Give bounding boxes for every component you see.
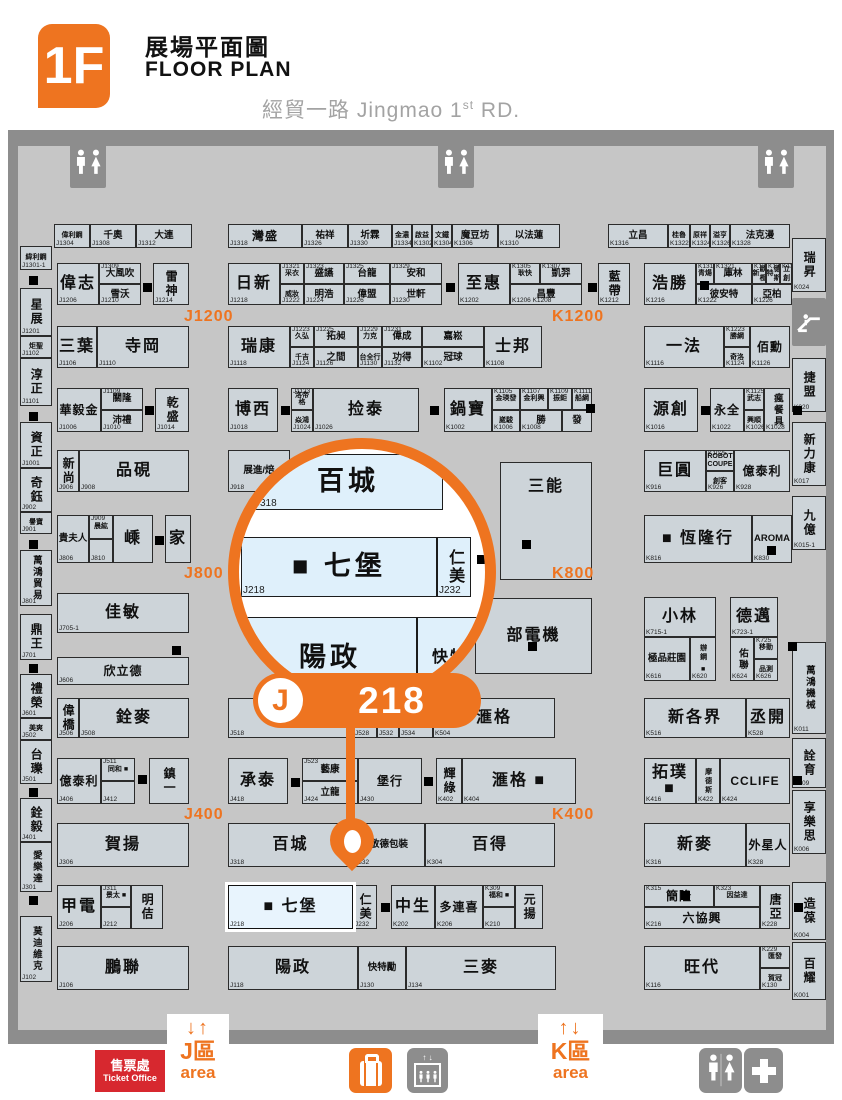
booth-code: J106 xyxy=(59,983,73,990)
booth-K006: 享樂思K006 xyxy=(792,790,826,854)
booth-name: 溢亨 xyxy=(713,232,727,239)
booth-J1018: 博西J1018 xyxy=(228,388,278,432)
booth-name: 力克 xyxy=(363,333,377,340)
booth-K626: 品測K626 xyxy=(754,659,778,681)
k-area-zone-label: K區 xyxy=(551,1038,591,1064)
pillar-marker xyxy=(29,896,38,905)
booth-code: K1111 xyxy=(574,389,591,396)
booth-code: K1222 xyxy=(698,298,717,305)
booth-name: 佰勳 xyxy=(757,341,783,353)
booth-J1126: 之間J1126 xyxy=(314,347,358,368)
booth-J606: 欣立德J606 xyxy=(57,657,189,685)
booth-code: J532 xyxy=(379,731,393,738)
booth-name: 新各界 xyxy=(668,710,722,726)
booth-code: J1301-1 xyxy=(22,263,46,270)
booth-name: 多連喜 xyxy=(439,901,478,913)
booth-code: K422 xyxy=(698,797,713,804)
booth-name: 資正 xyxy=(30,431,42,459)
booth-name: 船綱 xyxy=(575,395,589,402)
booth-K528: 丞開K528 xyxy=(746,698,790,738)
magnifier-circle: 百城J318■ 七堡J218仁美J232陽政J118快特勵 xyxy=(228,438,496,706)
booth-K1109: 振鉅K1109 xyxy=(548,388,572,410)
booth-code: K206 xyxy=(437,922,452,929)
booth-code: K1202 xyxy=(460,298,479,305)
booth-name: 德邁 xyxy=(736,609,772,625)
booth-code: J232 xyxy=(355,922,369,929)
booth-code: J1109 xyxy=(103,389,120,396)
booth-code: K624 xyxy=(732,674,747,681)
road-label-suffix: RD. xyxy=(474,99,520,122)
booth-J430: 堡行J430 xyxy=(358,758,422,804)
pillar-marker xyxy=(145,406,154,415)
booth-J1214: 雷神J1214 xyxy=(153,263,189,305)
booth-name: 鍋寶 xyxy=(450,402,486,418)
booth-J1206: 偉志J1206 xyxy=(57,263,99,305)
page-title-en: FLOOR PLAN xyxy=(145,58,292,82)
booth-code: J1222 xyxy=(282,298,300,305)
booth-name: 莫迪維克 xyxy=(31,926,41,972)
booth-J118: 陽政J118 xyxy=(228,946,358,990)
booth-name: 捡泰 xyxy=(348,402,384,418)
booth-name: 偉利鋼 xyxy=(62,232,83,239)
booth-name: 嘉崧 xyxy=(443,332,462,342)
booth-name: 瘋餐具 xyxy=(772,393,782,428)
booth-K1212: 藍帶K1212 xyxy=(598,263,630,305)
booth-K328: 外星人K328 xyxy=(746,823,790,867)
booth-name: 巨圓 xyxy=(657,463,693,479)
booth-K216: 六協興K216 xyxy=(644,907,760,929)
j-area-text: area xyxy=(181,1064,216,1083)
booth-name: 華毅金 xyxy=(59,404,98,416)
booth-name: 承泰 xyxy=(240,773,276,789)
booth-J1210: 雪沃J1210 xyxy=(99,284,141,305)
booth-code: K011 xyxy=(794,727,809,734)
booth-K202: 中生K202 xyxy=(391,885,435,929)
person-glyph xyxy=(418,1069,424,1084)
booth-K001: 百耀K001 xyxy=(792,942,826,1000)
booth-name: 唐亞 xyxy=(769,893,781,921)
booth-code: J318 xyxy=(230,860,244,867)
pillar-marker xyxy=(446,283,455,292)
booth-name: 仁美 xyxy=(446,549,462,585)
booth-K017: 新力康K017 xyxy=(792,422,826,486)
booth-name: 新尚 xyxy=(62,457,74,485)
restroom-icon xyxy=(70,141,106,188)
booth-code: J1309 xyxy=(101,264,119,271)
booth-code: J1326 xyxy=(304,241,322,248)
booth-J1106: 三葉J1106 xyxy=(57,326,97,368)
booth-name: 百城 xyxy=(317,468,379,496)
booth-code: J1001 xyxy=(22,461,40,468)
booth-name: 士邦 xyxy=(495,339,531,355)
road-label: 經貿一路 Jingmao 1st RD. xyxy=(262,94,520,124)
booth-J1218: 日新J1218 xyxy=(228,263,280,305)
booth-code: J901 xyxy=(22,527,36,534)
booth-J134: 三麥J134 xyxy=(406,946,556,990)
pillar-marker xyxy=(528,642,537,651)
booth-code: K1006 xyxy=(494,425,513,432)
booth-J705-1: 佳敏J705-1 xyxy=(57,593,189,633)
booth-J1312: 大連J1312 xyxy=(136,224,192,248)
zone-label-J1200: J1200 xyxy=(184,308,234,326)
booth-K309: 福和 ■K309 xyxy=(483,885,515,907)
booth-code: K1108 xyxy=(486,361,504,368)
booth-name: 三麥 xyxy=(463,960,499,976)
booth-code: J1201 xyxy=(22,329,40,336)
booth-name: 仁美 xyxy=(359,893,371,921)
ticket-office-en: Ticket Office xyxy=(103,1073,157,1084)
booth-J301: 愛樂達J301 xyxy=(20,842,52,892)
booth-code: J918 xyxy=(230,485,244,492)
booth-J502: 美爽J502 xyxy=(20,718,52,740)
booth-K1223: 勝綱K1223 xyxy=(724,326,750,347)
booth-name: 鵬聯 xyxy=(105,960,141,976)
booth-name: 星展 xyxy=(30,298,42,326)
booth-K916: 巨圓K916 xyxy=(644,450,706,492)
booth-code: K616 xyxy=(646,674,661,681)
escalator-glyph xyxy=(796,309,822,335)
booth-name: 啟益 xyxy=(415,232,429,239)
booth-J1222: 威妝J1222 xyxy=(280,284,304,305)
booth-J102: 莫迪維克J102 xyxy=(20,916,52,982)
booth-code: K001 xyxy=(794,993,809,1000)
booth-J801: 萬鴻貿易J801 xyxy=(20,550,52,606)
booth-code: J306 xyxy=(59,860,73,867)
escalator-icon xyxy=(792,298,826,346)
booth-K1202: 至惠K1202 xyxy=(458,263,510,305)
booth-K723-1: 德邁K723-1 xyxy=(730,597,778,637)
booth-K715-1: 小林K715-1 xyxy=(644,597,716,637)
booth-K1116: 一法K1116 xyxy=(644,326,724,368)
booth-code: J1110 xyxy=(99,361,116,368)
booth-name: 灣盛 xyxy=(252,230,278,242)
pillar-marker xyxy=(588,283,597,292)
booth-J232: 仁美J232 xyxy=(437,537,471,597)
booth-元揚: 元揚 xyxy=(515,885,543,929)
booth-name: 造葆 xyxy=(803,897,815,925)
booth-K304: 百得K304 xyxy=(425,823,555,867)
k-area-text: area xyxy=(553,1064,588,1083)
booth-name: 武志 xyxy=(747,395,761,402)
pillar-marker xyxy=(155,536,164,545)
booth-code: J1312 xyxy=(138,241,156,248)
booth-name: 桂魯 xyxy=(672,232,686,239)
booth-name: 景太 ■ xyxy=(106,892,126,899)
booth-name: 福和 ■ xyxy=(489,892,509,899)
booth-K323: 因益達K323 xyxy=(714,885,760,907)
booth-name: 冠球 xyxy=(443,353,462,363)
k-area-legend: ↑↓ K區 area xyxy=(538,1014,603,1100)
booth-name: 奇鈺 xyxy=(30,476,42,504)
booth-code: J1334 xyxy=(394,241,412,248)
booth-name: 金利興 xyxy=(524,395,545,402)
booth-J1001: 資正J1001 xyxy=(20,422,52,468)
booth-code: J218 xyxy=(230,922,244,929)
booth-K315: 簡隆K315 xyxy=(644,885,714,907)
pin-stem xyxy=(346,724,355,824)
booth-code: K404 xyxy=(464,797,479,804)
booth-name: 鎮一 xyxy=(163,767,175,795)
pillar-marker xyxy=(477,555,486,564)
booth-name: 佑聯 xyxy=(737,648,747,671)
booth-name: 品硯 xyxy=(116,463,152,479)
booth-name: 勝綱 xyxy=(730,333,744,340)
booth-code: K1307 xyxy=(542,264,561,271)
booth-J1308: 千奧J1308 xyxy=(90,224,136,248)
booth-code: J1224 xyxy=(306,298,324,305)
booth-K011: 萬鴻機械K011 xyxy=(792,642,826,734)
booth-code: K1305 xyxy=(512,264,531,271)
booth-name: 六協興 xyxy=(682,912,721,924)
booth-code: J1325 xyxy=(346,264,364,271)
elevator-cab xyxy=(414,1063,441,1087)
booth-name: 同和 ■ xyxy=(108,766,128,773)
booth-K1125: 武志K1125 xyxy=(744,388,764,410)
booth-code: J1223 xyxy=(292,327,310,334)
booth-J106: 鵬聯J106 xyxy=(57,946,189,990)
pillar-marker xyxy=(172,646,181,655)
booth-code: K926 xyxy=(708,485,723,492)
booth-code: K1223 xyxy=(726,327,745,334)
booth-J501: 台瓅J501 xyxy=(20,740,52,784)
callout-zone-letter: J xyxy=(258,678,303,723)
booth-code: K1324 xyxy=(692,241,710,248)
booth-J601: 禮榮J601 xyxy=(20,674,52,718)
booth-code: K1022 xyxy=(712,425,731,432)
pillar-marker xyxy=(29,788,38,797)
booth-code: J1014 xyxy=(157,425,175,432)
ticket-office-label: 售票處 Ticket Office xyxy=(95,1050,165,1092)
zone-label-K800: K800 xyxy=(552,565,594,583)
booth-code: J1231 xyxy=(384,327,402,334)
booth-K1304: 文鐵K1304 xyxy=(432,224,452,248)
booth-name: CCLIFE xyxy=(730,775,779,787)
booth-K725: 移動K725 xyxy=(754,637,778,659)
booth-code: K1216 xyxy=(646,298,665,305)
booth-K1026: 興順K1026 xyxy=(744,410,764,432)
booth-K1326: 溢亨K1326 xyxy=(710,224,730,248)
booth-name: 輝綠 xyxy=(443,767,455,795)
booth-K404: 滙格 ■K404 xyxy=(462,758,576,804)
booth-發: 發 xyxy=(562,410,592,432)
booth-code: J511 xyxy=(103,759,117,766)
booth-K116: 旺代K116 xyxy=(644,946,760,990)
booth-J1123: 洛帝格J1123 xyxy=(291,388,313,410)
booth-code: K202 xyxy=(393,922,408,929)
booth-name: 新麥 xyxy=(677,837,713,853)
booth-name: 賀揚 xyxy=(105,837,141,853)
booth-code: J1304 xyxy=(56,241,74,248)
booth-code: K228 xyxy=(762,922,777,929)
page-title-zh: 展場平面圖 xyxy=(145,28,270,62)
booth-code: J534 xyxy=(401,731,415,738)
booth-code: K1326 xyxy=(712,241,730,248)
pillar-marker xyxy=(586,404,595,413)
booth-J909: 晨紘J909 xyxy=(89,515,113,539)
booth-明佶: 明佶 xyxy=(131,885,163,929)
booth-code: K725 xyxy=(756,638,771,645)
booth-name: 耿快 xyxy=(518,270,532,277)
booth-code: K116 xyxy=(646,983,661,990)
booth-name: 快特勵 xyxy=(432,650,486,666)
booth-J1301-1: 緯利鋼J1301-1 xyxy=(20,246,52,270)
booth-J1223: 久弘J1223 xyxy=(290,326,314,347)
booth-code: J1330 xyxy=(350,241,368,248)
booth-code: K1206 K1208 xyxy=(512,298,551,305)
booth-K816: ■ 恆隆行K816 xyxy=(644,515,752,563)
booth-K1006: 崴駿K1006 xyxy=(492,410,520,432)
booth-K1107: 金利興K1107 xyxy=(520,388,548,410)
booth-K620: 辦鋼 ■K620 xyxy=(690,637,716,681)
booth-code: J1118 xyxy=(230,361,247,368)
booth-K1028: 瘋餐具K1028 xyxy=(764,388,790,432)
booth-code: J1010 xyxy=(103,425,121,432)
booth-code: J518 xyxy=(230,731,244,738)
booth-name: 一法 xyxy=(666,339,702,355)
booth-K1105: 金瑛發K1105 xyxy=(492,388,520,410)
booth-K1327: 德斯特K1327 xyxy=(766,263,780,284)
booth-code: K210 xyxy=(485,922,500,929)
booth-J1330: 圻霖J1330 xyxy=(348,224,392,248)
booth-K422: 摩德斯K422 xyxy=(696,758,720,804)
booth-code: J906 xyxy=(59,485,73,492)
booth-code: J701 xyxy=(22,653,36,660)
booth-J218: ■ 七堡J218 xyxy=(228,885,353,929)
booth-code: K1306 xyxy=(454,241,473,248)
booth-code: K528 xyxy=(748,731,763,738)
booth-code: J1226 xyxy=(346,298,364,305)
booth-name: 台瓅 xyxy=(30,748,42,776)
booth-K928: 億泰利K928 xyxy=(734,450,790,492)
booth-name: 小林 xyxy=(662,609,698,625)
booth-K020: 捷盟K020 xyxy=(792,358,826,412)
booth-K1126: 佰勳K1126 xyxy=(750,326,790,368)
booth-K1025: ROBOT COUPEK1025 xyxy=(706,450,734,471)
booth-code: K916 xyxy=(646,485,661,492)
booth-J701: 鼎王J701 xyxy=(20,614,52,660)
booth-code: K1328 xyxy=(732,241,751,248)
booth-code: K1302 xyxy=(414,241,432,248)
booth-code: K130 xyxy=(762,983,777,990)
zone-label-K1200: K1200 xyxy=(552,308,604,326)
booth-name: 銓毅 xyxy=(30,806,42,834)
restroom-man-woman-icon xyxy=(73,147,103,183)
booth-name: 詮育 xyxy=(803,749,815,777)
booth-name: 陽政 xyxy=(299,644,361,672)
booth-name: 因益達 xyxy=(727,892,748,899)
booth-code: J1214 xyxy=(155,298,173,305)
booth-name: 百得 xyxy=(472,837,508,853)
booth-code: K1325 xyxy=(754,264,766,271)
booth-部電機: 部電機 xyxy=(475,598,592,674)
booth-name: 寺岡 xyxy=(125,339,161,355)
booth-J1024: 焱鴻J1024 xyxy=(291,410,313,432)
booth-name: 百耀 xyxy=(803,957,815,985)
booth-code: K006 xyxy=(794,847,809,854)
booth-K830: AROMAK830 xyxy=(752,515,792,563)
pillar-marker xyxy=(29,664,38,673)
booth-J902: 奇鈺J902 xyxy=(20,468,52,512)
booth-J1101: 淳正J1101 xyxy=(20,358,52,406)
booth-name: 快特勵 xyxy=(368,963,397,973)
booth-name: 久弘 xyxy=(295,333,309,340)
booth-code: K017 xyxy=(794,479,809,486)
booth-code: K715-1 xyxy=(646,630,667,637)
booth-name: 乾盛 xyxy=(166,396,178,424)
booth-J1010: 沛禮J1010 xyxy=(101,410,143,432)
booth-code: J1018 xyxy=(230,425,248,432)
booth-name: ■ 恆隆行 xyxy=(662,531,734,547)
booth-code: K1321 xyxy=(716,264,735,271)
booth-嘉崧: 嘉崧 xyxy=(422,326,484,347)
booth-name: 源創 xyxy=(653,402,689,418)
booth-三能: 三能 xyxy=(500,462,592,580)
person-glyph xyxy=(425,1069,431,1084)
booth-name: 博西 xyxy=(235,402,271,418)
booth-K416: 拓璞 ■K416 xyxy=(644,758,696,804)
booth-code: K328 xyxy=(748,860,763,867)
booth-J1304: 偉利鋼J1304 xyxy=(54,224,90,248)
booth-name: 三葉 xyxy=(59,339,95,355)
booth-code: J406 xyxy=(59,797,73,804)
booth-J306: 賀揚J306 xyxy=(57,823,189,867)
booth-code: K830 xyxy=(754,556,769,563)
booth-code: J506 xyxy=(59,731,73,738)
booth-K1016: 源創K1016 xyxy=(644,388,698,432)
booth-J1325: 台龍J1325 xyxy=(344,263,390,284)
booth-code: K229 xyxy=(762,947,777,954)
booth-name: 發 xyxy=(572,416,582,426)
booth-J511: 同和 ■J511 xyxy=(101,758,135,781)
booth-name: 偉志 xyxy=(60,276,96,292)
booth-code: J909 xyxy=(91,516,105,523)
booth-code: K1316 xyxy=(610,241,629,248)
booth-J1326: 祐祥J1326 xyxy=(302,224,348,248)
booth-J130: 快特勵J130 xyxy=(358,946,406,990)
booth-name: 瑞康 xyxy=(241,339,277,355)
booth-name: 浩勝 xyxy=(652,276,688,292)
booth-K316: 新麥K316 xyxy=(644,823,746,867)
booth-name: 萬鴻機械 xyxy=(804,665,814,711)
booth-name: 明佶 xyxy=(141,893,153,921)
booth-K1302: 啟益K1302 xyxy=(412,224,432,248)
booth-J311: 景太 ■J311 xyxy=(101,885,131,907)
pillar-marker xyxy=(29,412,38,421)
booth-J806: 貴夫人J806 xyxy=(57,515,89,563)
booth-code: J1101 xyxy=(22,399,39,406)
briefcase-glyph xyxy=(360,1061,382,1086)
booth-K130: 賀冠K130 xyxy=(760,968,790,990)
booth-name: 辦鋼 ■ xyxy=(699,644,706,675)
booth-J1226: 偉盟J1226 xyxy=(344,284,390,305)
booth-name: 文鐵 xyxy=(435,232,449,239)
booth-J1224: 明浩J1224 xyxy=(304,284,344,305)
booth-name: 捷盟 xyxy=(803,371,815,399)
booth-J1230: 世軒J1230 xyxy=(390,284,442,305)
booth-code: J1123 xyxy=(293,389,310,396)
booth-code: J1308 xyxy=(92,241,110,248)
booth-code: K416 xyxy=(646,797,661,804)
floor-badge: 1F xyxy=(38,24,110,108)
booth-K1321: 庫林K1321 xyxy=(714,263,752,284)
restroom-man-woman-icon xyxy=(441,147,471,183)
booth-name: 偉橋 xyxy=(62,704,74,732)
booth-code: J232 xyxy=(439,586,461,596)
booth-name: 享樂思 xyxy=(803,801,815,843)
booth-K624: 佑聯K624 xyxy=(730,637,754,681)
j-area-legend: ↓↑ J區 area xyxy=(167,1014,229,1100)
booth-K1206 K1208: 昌豐K1206 K1208 xyxy=(510,284,582,305)
